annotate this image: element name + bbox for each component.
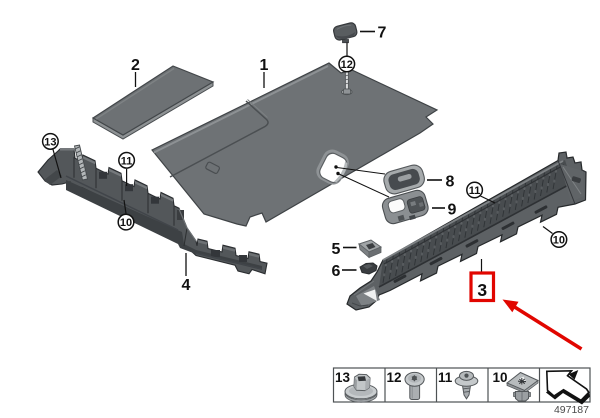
svg-text:11: 11 [469,185,481,197]
svg-text:13: 13 [335,370,351,385]
svg-text:8: 8 [446,174,455,191]
svg-text:7: 7 [378,25,387,42]
svg-text:1: 1 [260,57,269,74]
svg-text:9: 9 [448,202,457,219]
svg-text:13: 13 [44,136,56,148]
svg-text:4: 4 [182,277,191,294]
svg-text:10: 10 [120,217,132,229]
svg-text:5: 5 [332,241,341,258]
svg-text:497187: 497187 [554,404,589,416]
svg-text:6: 6 [332,263,341,280]
svg-text:2: 2 [131,57,140,74]
svg-text:11: 11 [438,370,453,385]
svg-text:12: 12 [387,370,402,385]
svg-text:10: 10 [493,370,508,385]
svg-text:12: 12 [341,59,353,71]
svg-text:10: 10 [553,235,565,247]
svg-text:11: 11 [121,155,133,167]
svg-text:3: 3 [477,280,487,300]
